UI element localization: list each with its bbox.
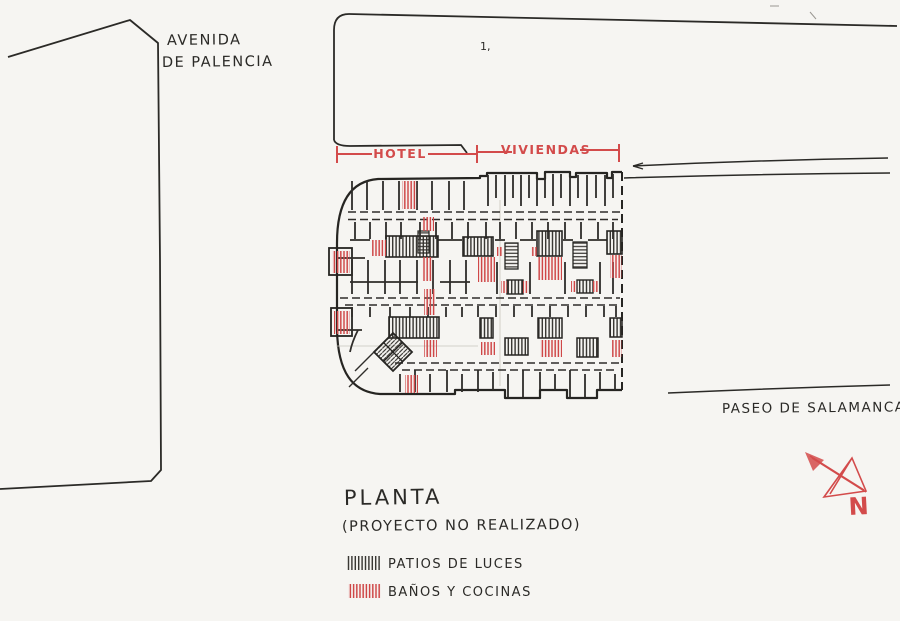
left-block <box>0 20 161 489</box>
patio-hatch <box>537 231 562 256</box>
legend-label-patios: PATIOS DE LUCES <box>388 557 524 572</box>
bano-hatch <box>610 255 622 278</box>
stair-ladder <box>505 243 518 269</box>
plan-title: PLANTA <box>344 485 443 510</box>
bano-hatch <box>422 217 434 231</box>
plan-outline-top <box>337 172 622 243</box>
north-arrow-head-icon <box>805 452 824 471</box>
street-label-avenida-line2: DE PALENCIA <box>162 54 274 71</box>
paseo-street-lines <box>624 158 890 393</box>
patio-hatch <box>386 236 438 257</box>
top-block <box>334 6 897 153</box>
patio-hatch <box>577 338 598 357</box>
bano-hatch <box>402 181 417 209</box>
left-block-outline <box>0 20 161 489</box>
legend-item-patios: PATIOS DE LUCES <box>347 556 524 572</box>
patio-hatch <box>505 338 528 355</box>
street-line-bottom <box>668 385 890 393</box>
walls-row-4 <box>352 306 616 317</box>
patio-hatch <box>538 318 562 338</box>
bano-hatch <box>497 247 503 256</box>
bano-hatch <box>372 240 386 256</box>
bano-hatch <box>332 251 350 273</box>
legend-label-banos: BAÑOS Y COCINAS <box>388 584 532 600</box>
section-label-viviendas: VIVIENDAS <box>501 142 591 157</box>
legend: PATIOS DE LUCES BAÑOS Y COCINAS <box>347 556 532 600</box>
legend-swatch-patios <box>347 556 381 570</box>
bano-hatch <box>531 247 537 256</box>
plan-subtitle: (PROYECTO NO REALIZADO) <box>342 517 581 535</box>
bano-hatch <box>538 257 562 280</box>
bano-hatch <box>501 281 507 293</box>
bano-hatch <box>571 281 577 292</box>
site-plan-sketch: AVENIDA DE PALENCIA 1, PASEO DE SALAMANC… <box>0 0 900 621</box>
pencil-guideline <box>336 200 500 386</box>
patio-hatch <box>607 231 622 254</box>
bano-hatch <box>593 281 599 292</box>
patio-hatch <box>507 280 523 294</box>
corner-stair-core <box>349 333 412 387</box>
legend-item-banos: BAÑOS Y COCINAS <box>348 584 532 600</box>
scanned-sketch-page: AVENIDA DE PALENCIA 1, PASEO DE SALAMANC… <box>0 0 900 621</box>
section-label-hotel: HOTEL <box>373 146 427 161</box>
stair-ladder <box>573 242 587 268</box>
street-label-paseo: PASEO DE SALAMANCA <box>722 399 900 417</box>
bano-hatch <box>422 257 433 281</box>
bano-hatch <box>540 340 562 357</box>
bano-hatch <box>523 281 529 293</box>
patio-hatch <box>389 317 439 338</box>
bano-hatch <box>481 342 495 355</box>
stray-pencil-mark: 1, <box>480 40 491 53</box>
patio-hatch <box>577 280 593 293</box>
pencil-smudge <box>770 6 816 19</box>
bano-hatch <box>424 340 437 357</box>
north-arrow: N <box>805 452 869 521</box>
top-block-outline <box>334 14 897 140</box>
patio-hatch <box>463 237 493 256</box>
patio-hatch <box>610 318 622 337</box>
bano-hatch <box>612 340 622 357</box>
street-label-avenida-line1: AVENIDA <box>167 32 242 49</box>
bano-hatch <box>424 289 435 315</box>
bano-hatch <box>478 257 495 282</box>
legend-swatch-banos <box>348 584 381 598</box>
street-line-upper <box>633 158 888 166</box>
bano-hatch <box>405 375 418 393</box>
patio-hatch <box>480 318 493 338</box>
north-label: N <box>848 492 870 521</box>
stair-ladder <box>418 231 429 253</box>
street-line-lower <box>624 173 890 178</box>
walls-viviendas-top-row <box>488 174 613 206</box>
bano-hatch <box>334 311 350 334</box>
building-plan <box>329 172 622 398</box>
